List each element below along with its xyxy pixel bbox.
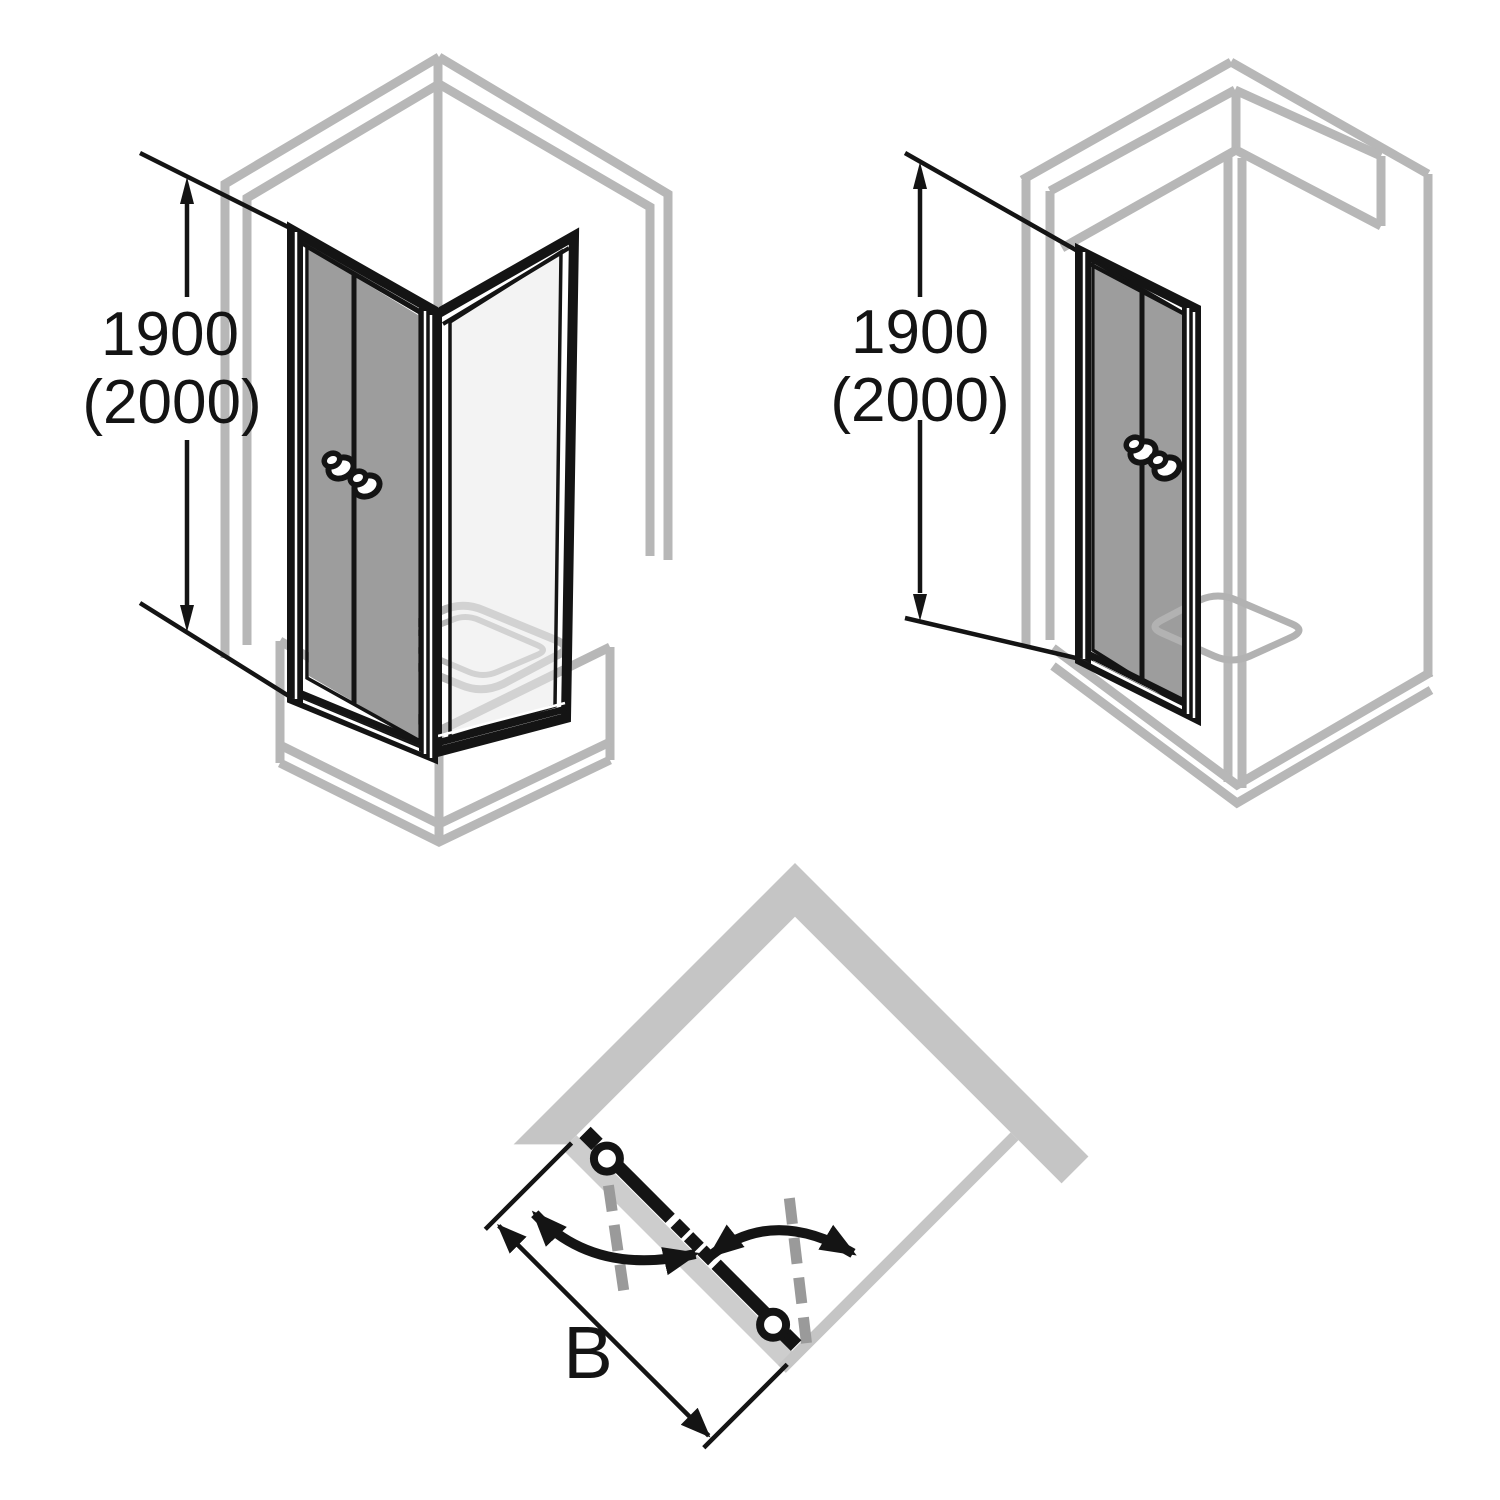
niche-door-unit bbox=[1076, 247, 1299, 721]
corner-entry-view: 1900 (2000) bbox=[82, 57, 668, 842]
arrow-down-icon bbox=[913, 594, 927, 621]
height-label-secondary: (2000) bbox=[830, 366, 1009, 435]
plan-side-panel bbox=[778, 1132, 1018, 1372]
plan-swing-view: B bbox=[457, 863, 1088, 1494]
height-label-primary: 1900 bbox=[101, 300, 239, 369]
extension-line-top bbox=[140, 153, 300, 233]
side-post bbox=[1182, 302, 1199, 721]
shower-door-diagram: 1900 (2000) bbox=[0, 0, 1500, 1500]
corner-post bbox=[419, 305, 437, 761]
diagram-canvas: 1900 (2000) bbox=[0, 0, 1500, 1500]
side-glass-panel bbox=[437, 236, 574, 752]
extension-line-left bbox=[485, 1143, 571, 1229]
width-label: B bbox=[563, 1311, 612, 1394]
height-dimension: 1900 (2000) bbox=[82, 153, 300, 703]
extension-line-right bbox=[704, 1364, 787, 1447]
height-label-secondary: (2000) bbox=[82, 368, 261, 437]
corner-door-unit bbox=[288, 226, 574, 761]
swing-door-panels bbox=[288, 226, 437, 761]
niche-entry-view: 1900 (2000) bbox=[830, 62, 1431, 803]
extension-line-bottom bbox=[905, 618, 1093, 662]
extension-line-top bbox=[905, 153, 1090, 258]
height-label-primary: 1900 bbox=[851, 298, 989, 367]
